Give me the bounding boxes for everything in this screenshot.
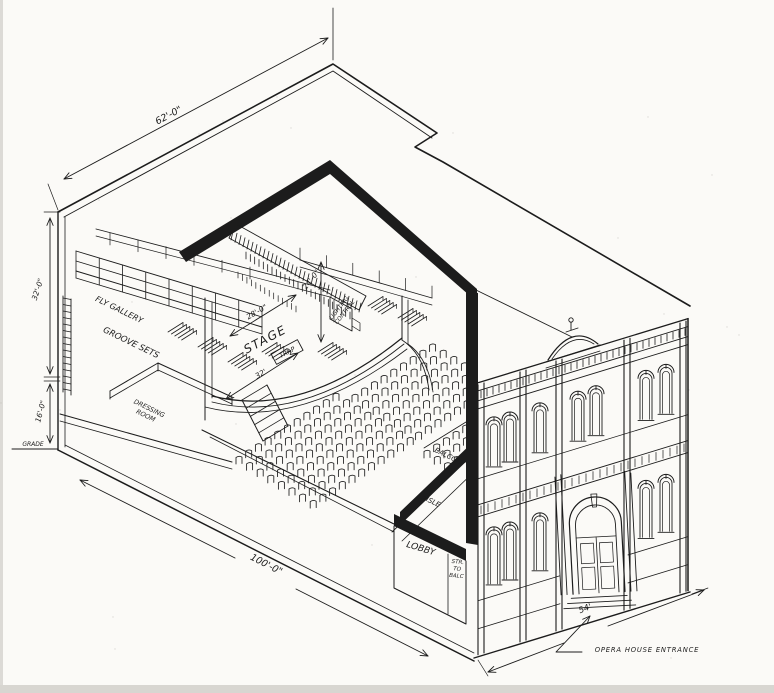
building-linework: [12, 8, 708, 676]
dim-roof-length: 62'-0": [154, 104, 184, 127]
scan-edge-left: [0, 0, 3, 693]
stairs-to-balcony-label: STR. TO BALC: [449, 559, 466, 580]
dimension-lines: [44, 8, 708, 676]
dressing-room-walls: [110, 363, 232, 405]
seating-main-left: [236, 393, 413, 508]
facade-pediment: [546, 318, 600, 368]
dim-stagehouse-height: 32'-0": [30, 277, 46, 301]
grade-label: GRADE: [22, 441, 44, 448]
wall-ladder: [63, 296, 71, 395]
groove-sets-label: GROOVE SETS: [101, 325, 161, 361]
stairs-line3: BALC: [449, 573, 464, 580]
facade-entrance: [555, 471, 638, 609]
entrance-leader-line: [556, 616, 590, 652]
opera-house-cutaway-drawing: 62'-0" 32'-0" 16'-0" GRADE FLY GALLERY G…: [0, 0, 774, 693]
paper-speckles: [0, 96, 739, 658]
drawing-canvas: 62'-0" 32'-0" 16'-0" GRADE FLY GALLERY G…: [0, 0, 774, 693]
fly-gallery-label: FLY GALLERY: [94, 294, 146, 325]
dim-facade-width: 54': [577, 602, 593, 616]
auditorium-near-wall: [202, 430, 394, 532]
dim-apron-width: 32': [253, 367, 268, 381]
stairs-line2: TO: [453, 566, 462, 573]
scan-edge-bottom: [0, 685, 774, 693]
entrance-label: OPERA HOUSE ENTRANCE: [595, 646, 700, 654]
dressing-room-label: DRESSING ROOM: [129, 398, 166, 427]
groove-set-slats: [168, 297, 427, 371]
dim-understage-height: 16'-0": [33, 399, 48, 423]
